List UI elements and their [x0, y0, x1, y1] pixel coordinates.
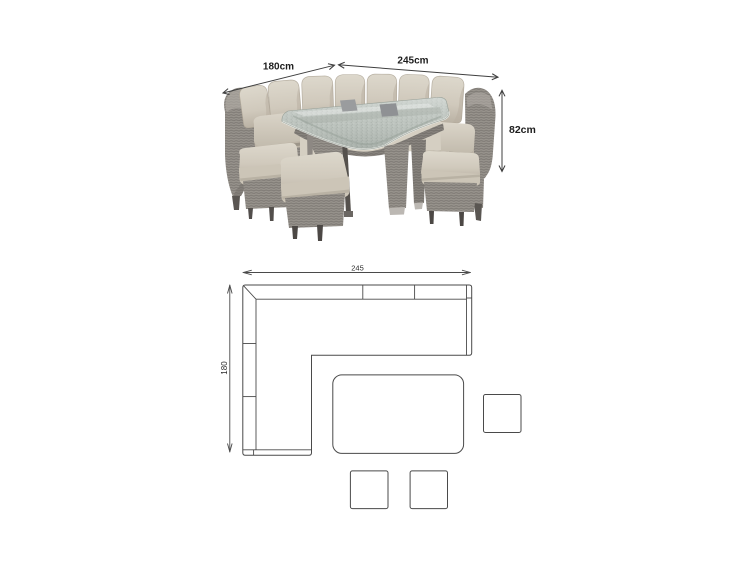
svg-text:82cm: 82cm	[509, 124, 536, 136]
svg-text:245cm: 245cm	[397, 56, 428, 67]
svg-text:245: 245	[351, 264, 364, 273]
svg-text:180cm: 180cm	[263, 62, 294, 73]
svg-text:180: 180	[220, 361, 229, 375]
